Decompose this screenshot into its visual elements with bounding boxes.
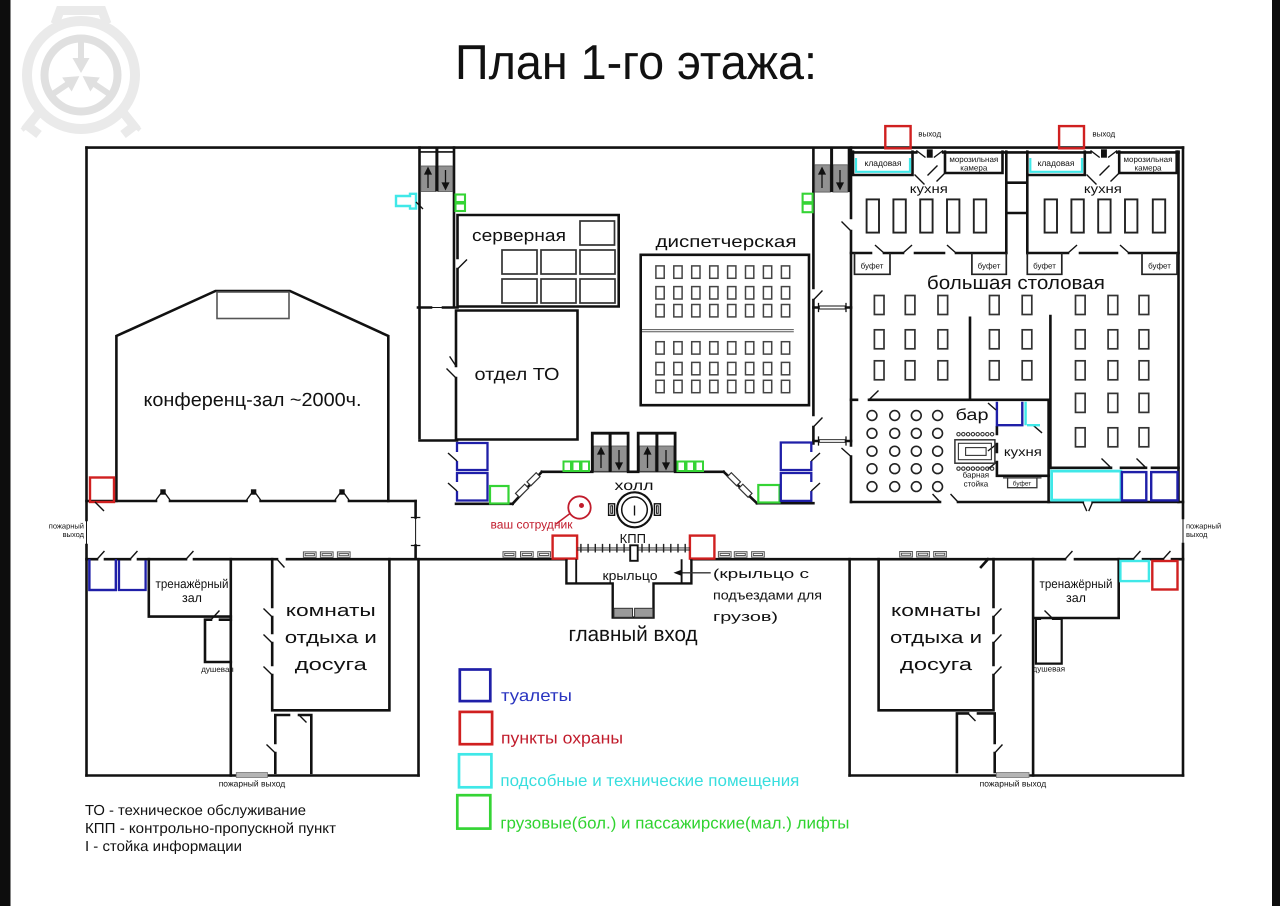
svg-text:стойка: стойка <box>964 480 989 489</box>
svg-text:крыльцо: крыльцо <box>603 568 658 583</box>
svg-text:отдыха и: отдыха и <box>890 628 982 647</box>
svg-text:буфет: буфет <box>861 262 884 271</box>
svg-text:КПП - контрольно-пропускной пу: КПП - контрольно-пропускной пункт <box>85 821 336 837</box>
svg-text:выход: выход <box>918 130 941 139</box>
svg-text:кухня: кухня <box>1004 445 1042 459</box>
svg-text:зал: зал <box>1066 591 1086 605</box>
svg-text:выход: выход <box>1092 130 1115 139</box>
svg-text:ТО - техническое обслуживание: ТО - техническое обслуживание <box>85 803 306 819</box>
svg-text:досуга: досуга <box>295 655 368 674</box>
svg-text:буфет: буфет <box>1148 262 1171 271</box>
svg-text:буфет: буфет <box>1013 481 1032 488</box>
svg-text:тренажёрный: тренажёрный <box>156 577 229 591</box>
svg-text:(крыльцо с: (крыльцо с <box>713 566 810 581</box>
svg-text:серверная: серверная <box>472 226 566 245</box>
svg-text:комнаты: комнаты <box>286 601 376 620</box>
svg-text:пожарный выход: пожарный выход <box>980 779 1047 789</box>
svg-text:КПП: КПП <box>620 531 646 546</box>
svg-text:камера: камера <box>1135 164 1163 173</box>
svg-text:отдел ТО: отдел ТО <box>475 364 560 384</box>
svg-text:отдыха и: отдыха и <box>285 628 377 647</box>
svg-text:кладовая: кладовая <box>865 158 902 168</box>
svg-text:душевая: душевая <box>201 665 233 674</box>
svg-text:комнаты: комнаты <box>891 601 981 620</box>
svg-text:пожарный выход: пожарный выход <box>219 779 286 789</box>
svg-text:бар: бар <box>956 407 989 424</box>
svg-text:кухня: кухня <box>910 182 948 196</box>
svg-text:туалеты: туалеты <box>501 687 572 705</box>
svg-text:ваш сотрудник: ваш сотрудник <box>491 518 574 532</box>
svg-text:План 1-го этажа:: План 1-го этажа: <box>455 36 817 90</box>
svg-text:большая столовая: большая столовая <box>927 273 1105 294</box>
svg-text:кладовая: кладовая <box>1038 158 1075 168</box>
svg-text:зал: зал <box>182 591 202 605</box>
svg-text:кухня: кухня <box>1084 182 1122 196</box>
svg-text:холл: холл <box>615 477 654 493</box>
svg-text:I: I <box>632 504 636 520</box>
svg-text:диспетчерская: диспетчерская <box>656 233 797 251</box>
svg-text:грузовые(бол.) и пассажирские(: грузовые(бол.) и пассажирские(мал.) лифт… <box>500 815 849 833</box>
svg-text:душевая: душевая <box>1033 665 1065 674</box>
svg-text:досуга: досуга <box>900 655 973 674</box>
svg-text:I - стойка информации: I - стойка информации <box>85 839 242 855</box>
svg-text:выход: выход <box>1186 530 1208 539</box>
svg-text:барная: барная <box>963 471 990 480</box>
svg-text:камера: камера <box>960 164 988 173</box>
svg-text:пункты охраны: пункты охраны <box>501 730 623 748</box>
svg-text:грузов): грузов) <box>713 609 778 624</box>
svg-text:тренажёрный: тренажёрный <box>1040 577 1113 591</box>
svg-text:конференц-зал ~2000ч.: конференц-зал ~2000ч. <box>144 390 362 411</box>
svg-text:подъездами для: подъездами для <box>713 588 822 603</box>
svg-text:буфет: буфет <box>1033 262 1056 271</box>
svg-text:выход: выход <box>63 530 85 539</box>
svg-text:подсобные и технические помеще: подсобные и технические помещения <box>500 772 799 790</box>
svg-text:главный вход: главный вход <box>569 623 698 646</box>
svg-text:буфет: буфет <box>978 262 1001 271</box>
